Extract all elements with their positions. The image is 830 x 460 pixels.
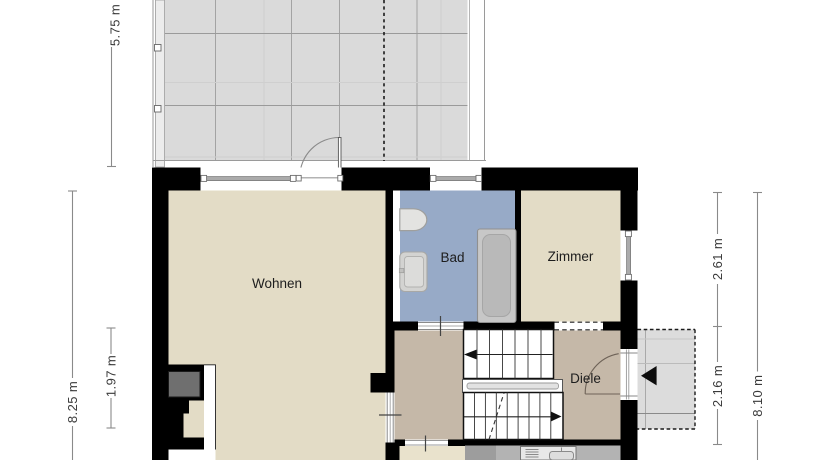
svg-text:Wohnen: Wohnen (252, 276, 302, 291)
svg-text:Diele: Diele (570, 371, 601, 386)
svg-text:5.75 m: 5.75 m (107, 4, 122, 46)
svg-text:Zimmer: Zimmer (548, 249, 594, 264)
svg-text:8.25 m: 8.25 m (65, 381, 80, 423)
svg-text:8.10 m: 8.10 m (750, 375, 765, 417)
svg-text:2.16 m: 2.16 m (710, 365, 725, 407)
svg-text:2.61 m: 2.61 m (710, 238, 725, 280)
svg-text:1.97 m: 1.97 m (104, 355, 119, 397)
svg-text:Bad: Bad (440, 250, 464, 265)
